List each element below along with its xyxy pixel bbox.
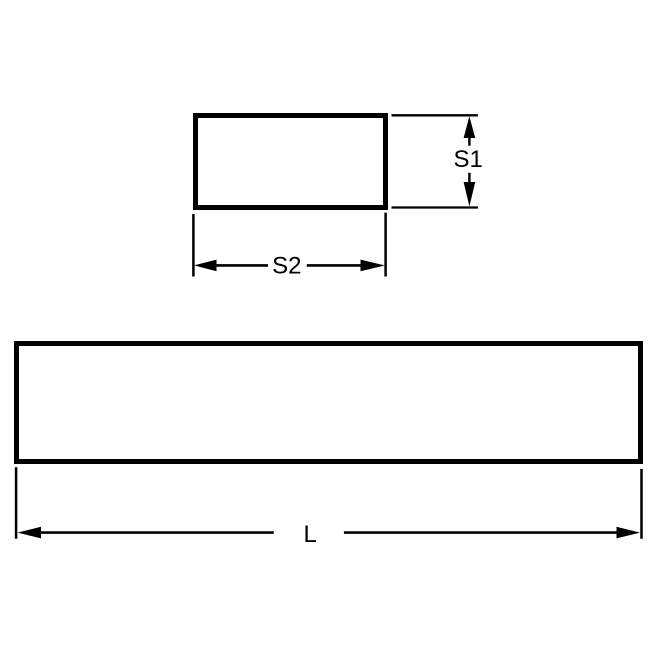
svg-text:S2: S2 — [272, 252, 301, 279]
svg-text:S1: S1 — [454, 146, 483, 173]
svg-text:L: L — [304, 521, 317, 548]
